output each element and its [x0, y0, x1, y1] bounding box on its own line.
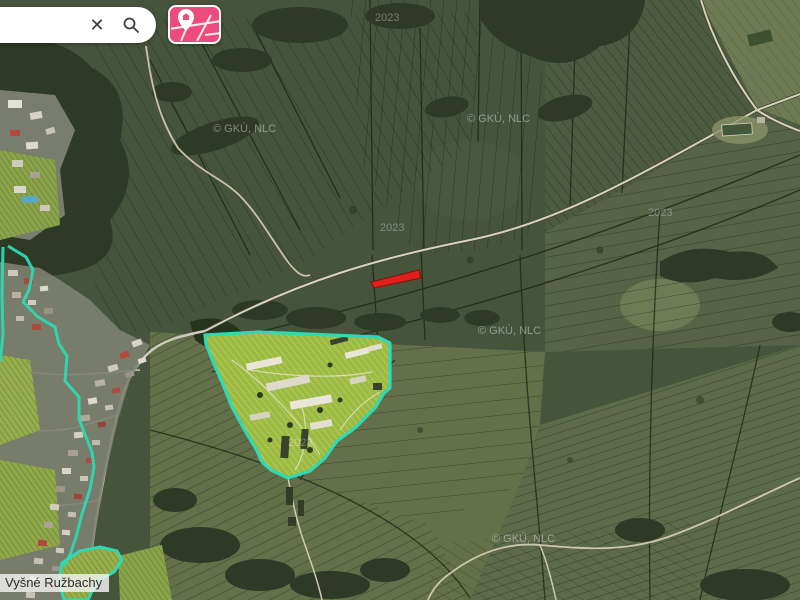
aerial-cadastral-map[interactable]: © GKÚ, NLC © GKÚ, NLC © GKÚ, NLC © GKÚ, …	[0, 0, 800, 600]
search-input[interactable]	[0, 6, 76, 44]
map-with-pin-glyph	[171, 7, 219, 41]
copyright-watermark: © GKÚ, NLC	[467, 112, 530, 125]
close-icon[interactable]: ✕	[84, 12, 110, 38]
magnifier-glyph	[122, 16, 140, 34]
year-watermark: 2023	[380, 222, 404, 234]
year-watermark: 2023	[375, 12, 399, 24]
year-watermark: 2023	[288, 437, 312, 449]
place-label: Vyšné Ružbachy	[0, 574, 109, 592]
copyright-watermark: © GKÚ, NLC	[213, 122, 276, 135]
map-pin-map-icon[interactable]	[168, 5, 221, 44]
year-watermark: 2023	[648, 207, 672, 219]
copyright-watermark: © GKÚ, NLC	[492, 532, 555, 545]
search-bar[interactable]: ✕	[0, 7, 156, 43]
copyright-watermark: © GKÚ, NLC	[478, 324, 541, 337]
search-icon[interactable]	[118, 12, 144, 38]
map-viewport[interactable]: © GKÚ, NLC © GKÚ, NLC © GKÚ, NLC © GKÚ, …	[0, 0, 800, 600]
